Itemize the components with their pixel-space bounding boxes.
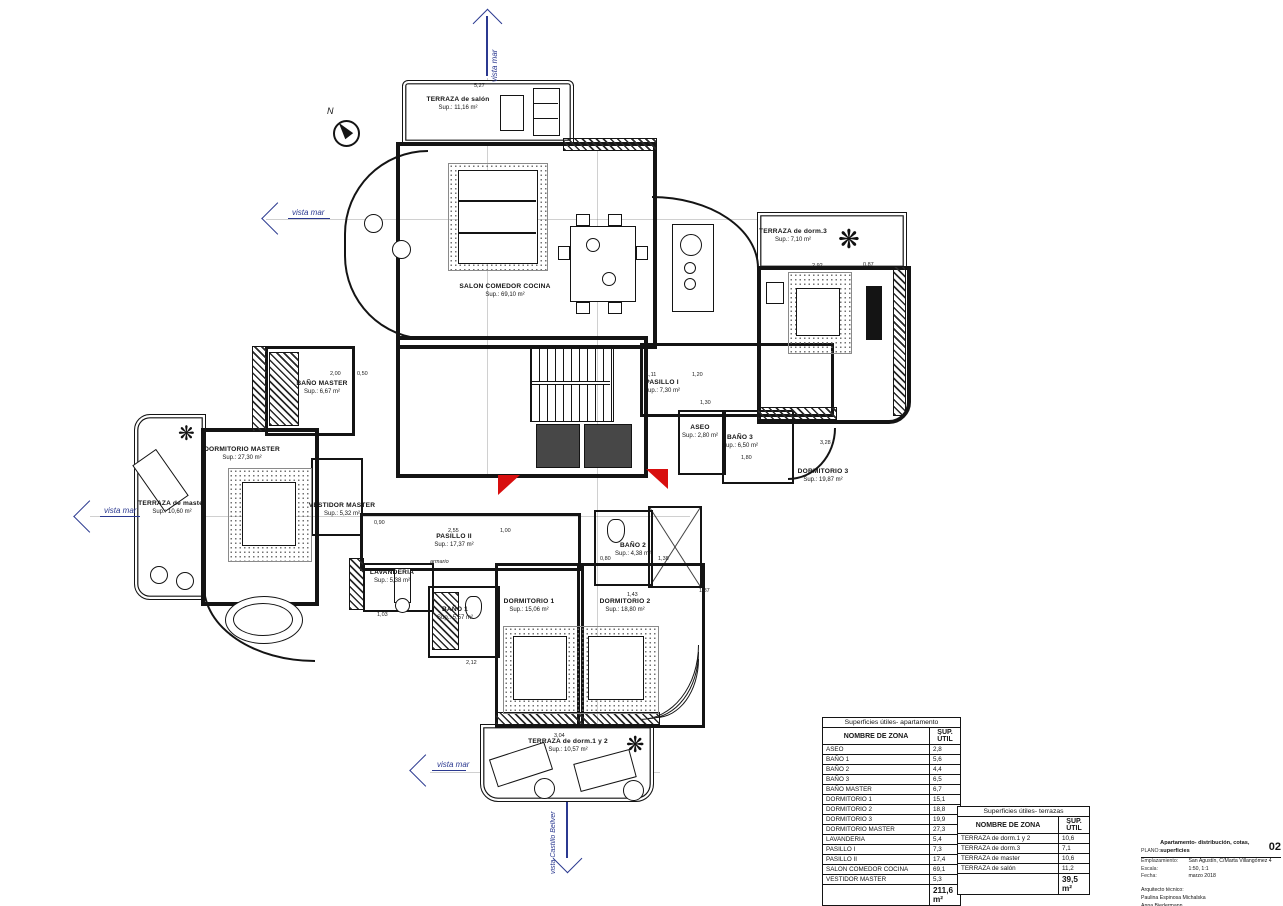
table-row: BAÑO MASTER6,7: [823, 785, 961, 795]
terrace-sofa: [533, 88, 560, 136]
terrace-dorm3-outline: [757, 212, 907, 270]
title-block: PLANO: Apartamento- distribución, cotas,…: [1141, 839, 1281, 906]
date-label: Fecha:: [1141, 873, 1187, 881]
column-header-zone: NOMBRE DE ZONA: [958, 817, 1059, 834]
sup-cell: 19,9: [930, 815, 961, 825]
column-header-zone: NOMBRE DE ZONA: [823, 728, 930, 745]
terrace-round-table: [150, 566, 168, 584]
table-row: DORMITORIO MASTER27,3: [823, 825, 961, 835]
table-row: BAÑO 15,6: [823, 755, 961, 765]
sheet-title: Apartamento- distribución, cotas, superf…: [1160, 839, 1269, 856]
sup-cell: 15,1: [930, 795, 961, 805]
table-title: Superficies útiles- terrazas: [958, 807, 1090, 817]
sup-cell: 2,8: [930, 745, 961, 755]
view-label-bottom: vista Castillo Bellver: [550, 804, 557, 874]
sup-cell: 5,3: [930, 875, 961, 885]
table-row: BAÑO 36,5: [823, 775, 961, 785]
sup-cell: 6,5: [930, 775, 961, 785]
dimension-label: 1,87: [699, 588, 710, 594]
sup-cell: 7,1: [1059, 844, 1090, 854]
sup-cell: 10,6: [1059, 854, 1090, 864]
zone-cell: ASEO: [823, 745, 930, 755]
aseo-walls: [678, 410, 726, 475]
closet-label: armario: [430, 559, 449, 565]
dining-table: [570, 226, 636, 302]
table-row: DORMITORIO 218,8: [823, 805, 961, 815]
zone-cell: TERRAZA de salón: [958, 864, 1059, 874]
stair-rail: [532, 381, 610, 385]
pasillo1-walls: [640, 343, 834, 417]
sup-cell: 5,6: [930, 755, 961, 765]
table-title: Superficies útiles- apartamento: [823, 718, 961, 728]
dimension-label: 0,87: [863, 262, 874, 268]
table-row: TERRAZA de salón11,2: [958, 864, 1090, 874]
sup-cell: 17,4: [930, 855, 961, 865]
north-label: N: [327, 106, 334, 116]
shower-enclosure: [648, 506, 702, 588]
salon-sofa: [458, 170, 538, 264]
dimension-label: 2,12: [466, 660, 477, 666]
dimension-label: 1,03: [377, 612, 388, 618]
table-row: TERRAZA de master10,6: [958, 854, 1090, 864]
empty-cell: [958, 874, 1059, 895]
oval-tub-inner: [233, 603, 293, 636]
arrow-down-icon: [553, 844, 583, 874]
view-label-bottom-left: vista mar: [437, 760, 469, 769]
section-marker: [498, 475, 520, 495]
side-table: [392, 240, 411, 259]
salon-curved-bay-window: [344, 150, 428, 340]
empty-cell: [823, 885, 930, 906]
column-header-sup: SUP. ÚTIL: [930, 728, 961, 745]
scale-value: 1:50, 1:1: [1188, 866, 1208, 872]
view-label-top: vista mar: [490, 30, 499, 82]
total-cell: 39,5 m²: [1059, 874, 1090, 895]
date-value: marzo 2018: [1188, 873, 1215, 879]
zone-cell: TERRAZA de master: [958, 854, 1059, 864]
table-row: TERRAZA de dorm.37,1: [958, 844, 1090, 854]
sup-cell: 7,3: [930, 845, 961, 855]
table-row: PASILLO I7,3: [823, 845, 961, 855]
sofa-divider: [458, 200, 536, 202]
exterior-wall: [893, 266, 906, 416]
arrow-left-icon: [261, 202, 294, 235]
terrace-round-table: [534, 778, 555, 799]
terrace-round-table: [176, 572, 194, 590]
zone-cell: DORMITORIO 3: [823, 815, 930, 825]
sofa-divider: [533, 103, 558, 104]
exterior-wall: [563, 138, 657, 151]
dorm3-bed: [796, 288, 840, 336]
plate: [586, 238, 600, 252]
zone-cell: DORMITORIO MASTER: [823, 825, 930, 835]
terrace-areas-table: Superficies útiles- terrazas NOMBRE DE Z…: [957, 806, 1090, 895]
zone-cell: PASILLO II: [823, 855, 930, 865]
dimension-label: 1,80: [741, 455, 752, 461]
exterior-wall: [252, 346, 267, 432]
dimension-label: 0,50: [357, 371, 368, 377]
dimension-label: 3,04: [554, 733, 565, 739]
zone-cell: TERRAZA de dorm.3: [958, 844, 1059, 854]
zone-cell: PASILLO I: [823, 845, 930, 855]
column-header-sup: SUP. ÚTIL: [1059, 817, 1090, 834]
sup-cell: 6,7: [930, 785, 961, 795]
sup-cell: 10,6: [1059, 834, 1090, 844]
zone-cell: DORMITORIO 1: [823, 795, 930, 805]
chair: [636, 246, 648, 260]
dimension-label: 1,11: [646, 372, 656, 378]
author-name: Paulina Espinosa Michalska: [1141, 895, 1281, 903]
sheet-number: 02: [1269, 839, 1281, 856]
title-block-row: Fecha: marzo 2018: [1141, 873, 1281, 881]
sup-cell: 11,2: [1059, 864, 1090, 874]
floor-plan-sheet: ❋ ❋ ❋ N vista mar vista mar vista mar vi…: [0, 0, 1283, 906]
total-row: 39,5 m²: [958, 874, 1090, 895]
chair: [576, 302, 590, 314]
dimension-label: 0,90: [374, 520, 385, 526]
zone-cell: SALON COMEDOR COCINA: [823, 865, 930, 875]
table-row: TERRAZA de dorm.1 y 210,6: [958, 834, 1090, 844]
hob: [684, 278, 696, 290]
curved-wall-southeast: [788, 428, 836, 480]
toilet: [465, 596, 482, 619]
zone-cell: BAÑO MASTER: [823, 785, 930, 795]
dorm1-bed: [513, 636, 567, 700]
terrace-round-table: [623, 780, 644, 801]
bano3-walls: [722, 410, 794, 484]
table-row: DORMITORIO 319,9: [823, 815, 961, 825]
sofa-divider: [533, 118, 558, 119]
sup-cell: 27,3: [930, 825, 961, 835]
chair: [576, 214, 590, 226]
dorm2-bed: [588, 636, 644, 700]
section-marker: [646, 469, 668, 489]
washer-drum: [395, 598, 410, 613]
zone-cell: TERRAZA de dorm.1 y 2: [958, 834, 1059, 844]
bano2-walls: [594, 510, 653, 586]
sup-cell: 69,1: [930, 865, 961, 875]
exterior-wall: [757, 407, 837, 420]
table-row: LAVANDERIA5,4: [823, 835, 961, 845]
dimension-label: 1,38: [658, 556, 669, 562]
site-value: San Agustín, C/Marta Villangómez 4: [1188, 858, 1271, 864]
view-label-mid-left: vista mar: [104, 506, 136, 515]
master-bed: [242, 482, 296, 546]
view-label-upper-left: vista mar: [292, 208, 324, 217]
chair: [608, 214, 622, 226]
elevator-shaft: [584, 424, 632, 468]
hob: [684, 262, 696, 274]
toilet: [607, 519, 625, 543]
zone-cell: LAVANDERIA: [823, 835, 930, 845]
total-cell: 211,6 m²: [930, 885, 961, 906]
hob: [680, 234, 702, 256]
dimension-label: 1,20: [692, 372, 703, 378]
title-block-row: Emplazamiento: San Agustín, C/Marta Vill…: [1141, 858, 1281, 866]
sofa-divider: [458, 232, 536, 234]
zone-cell: BAÑO 2: [823, 765, 930, 775]
table-row: SALON COMEDOR COCINA69,1: [823, 865, 961, 875]
authors-label: Arquitecto técnico:: [1141, 887, 1281, 895]
sup-cell: 18,8: [930, 805, 961, 815]
dimension-label: 2,92: [812, 263, 823, 269]
elevator-shaft: [536, 424, 580, 468]
zone-cell: BAÑO 3: [823, 775, 930, 785]
dorm3-dresser: [766, 282, 784, 304]
scale-label: Escala:: [1141, 866, 1187, 874]
dimension-label: 0,80: [600, 556, 611, 562]
table-row: ASEO2,8: [823, 745, 961, 755]
exterior-wall: [349, 558, 364, 610]
dimension-label: 2,55: [448, 528, 459, 534]
zone-cell: VESTIDOR MASTER: [823, 875, 930, 885]
title-block-row: Escala: 1:50, 1:1: [1141, 866, 1281, 874]
site-label: Emplazamiento:: [1141, 858, 1187, 866]
table-row: PASILLO II17,4: [823, 855, 961, 865]
dimension-label: 2,00: [330, 371, 341, 377]
chair: [558, 246, 570, 260]
dimension-label: 1,30: [700, 400, 711, 406]
dimension-label: 3,28: [820, 440, 831, 446]
view-arrow-stem: [288, 218, 330, 219]
arrow-left-icon: [73, 500, 106, 533]
total-row: 211,6 m²: [823, 885, 961, 906]
sheet-label: PLANO:: [1141, 848, 1158, 856]
terrace-table: [500, 95, 524, 131]
table-row: VESTIDOR MASTER5,3: [823, 875, 961, 885]
wardrobe: [866, 286, 882, 340]
sup-cell: 5,4: [930, 835, 961, 845]
sup-cell: 4,4: [930, 765, 961, 775]
vestidor-walls: [311, 458, 363, 536]
zone-cell: BAÑO 1: [823, 755, 930, 765]
bano1-shower: [432, 592, 459, 650]
master-shower: [269, 352, 299, 426]
table-row: DORMITORIO 115,1: [823, 795, 961, 805]
chair: [608, 302, 622, 314]
table-row: BAÑO 24,4: [823, 765, 961, 775]
zone-cell: DORMITORIO 2: [823, 805, 930, 815]
dimension-label: 1,00: [500, 528, 511, 534]
title-block-row: PLANO: Apartamento- distribución, cotas,…: [1141, 839, 1281, 858]
apartment-areas-table: Superficies útiles- apartamento NOMBRE D…: [822, 717, 961, 906]
side-table: [364, 214, 383, 233]
plate: [602, 272, 616, 286]
dimension-label: 1,43: [627, 592, 638, 598]
dimension-label: 5,27: [474, 83, 485, 89]
